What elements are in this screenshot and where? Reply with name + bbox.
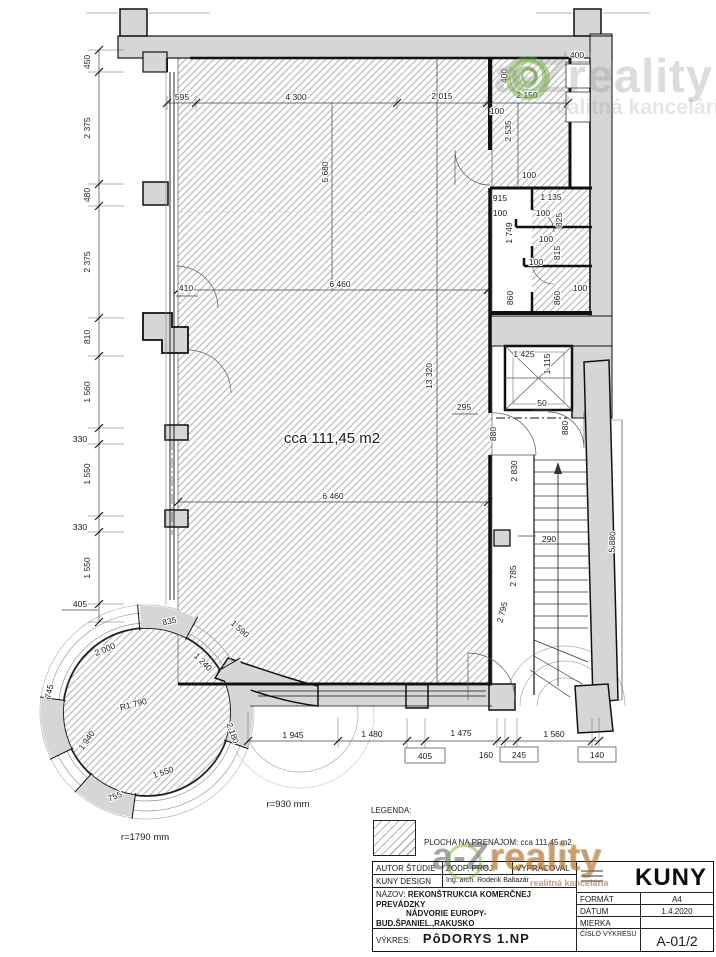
dim-label: 815	[552, 246, 562, 260]
dim-label: 5 680	[320, 161, 330, 183]
dim-label: 410	[179, 283, 193, 293]
dim-label: 330	[73, 522, 87, 532]
dim-label: 860	[552, 291, 562, 305]
vykres-value: PôDORYS 1.NP	[423, 931, 530, 946]
format-label: FORMÁT	[577, 893, 641, 905]
dim-label: 595	[175, 92, 189, 102]
area-label: cca 111,45 m2	[284, 430, 380, 447]
vykres-label: VÝKRES:	[376, 936, 411, 945]
dim-label: 330	[73, 434, 87, 444]
dim-label: 2 785	[508, 565, 518, 587]
dim-label: 1 550	[82, 557, 92, 579]
cislo-label: ČÍSLO VÝKRESU	[577, 929, 641, 951]
dim-label: 745	[43, 683, 56, 699]
dim-label: 450	[82, 55, 92, 69]
dim-label: 2 535	[503, 120, 513, 142]
dim-label: 2 015	[431, 91, 453, 101]
tower-radius-note: r=1790 mm	[121, 832, 169, 843]
dim-label: 915	[493, 193, 507, 203]
dim-label: 4 300	[285, 92, 307, 102]
dim-label: 13 320	[424, 363, 434, 389]
format-value: A4	[641, 893, 713, 905]
dim-label: 100	[522, 170, 536, 180]
dim-label: 140	[590, 750, 604, 760]
floorplan-page: 450 2 375 480 2 375 810 1 560 330 1 550 …	[0, 0, 716, 957]
designer-name: Ing. arch. Roderik Baltazár	[443, 875, 577, 888]
dim-label: 880	[488, 427, 498, 441]
dim-label: 6 460	[329, 279, 351, 289]
dim-label: 2 375	[82, 251, 92, 273]
author-studie-label: AUTOR ŠTÚDIE	[373, 862, 443, 875]
logo-decor-lines	[581, 870, 603, 884]
dim-label: 245	[512, 750, 526, 760]
nazov-block: NÁZOV: REKONŠTRUKCIA KOMERČNEJ PREVÁDZKY…	[373, 888, 577, 929]
dim-label: 100	[493, 208, 507, 218]
dim-label: 2 795	[495, 600, 510, 623]
dim-label: 405	[418, 751, 432, 761]
dim-label: 1 550	[82, 463, 92, 485]
dim-label: 50	[537, 398, 547, 408]
dim-label: 400	[499, 69, 509, 83]
dim-label: 6 460	[322, 491, 344, 501]
dim-label: 100	[529, 257, 543, 267]
dim-label: 860	[505, 291, 515, 305]
title-block: AUTOR ŠTÚDIE ZODP. PROJ. VYPRACOVAL KUNY…	[372, 861, 714, 952]
dim-label: 480	[82, 188, 92, 202]
mierka-value	[641, 917, 713, 929]
datum-label: DÁTUM	[577, 905, 641, 917]
dim-label: 2 150	[516, 90, 538, 100]
floorplan-svg: 450 2 375 480 2 375 810 1 560 330 1 550 …	[0, 0, 716, 957]
dim-label: 880	[560, 421, 570, 435]
dim-label: 100	[573, 283, 587, 293]
studio-name: KUNY DESIGN	[373, 875, 443, 888]
dim-label: 400	[570, 50, 584, 60]
nazov-line2: NÁDVORIE EUROPY- BUD.ŠPANIEL.,RAKUSKO	[376, 909, 486, 928]
dim-label: 1 749	[504, 222, 514, 244]
vypracoval-label: VYPRACOVAL	[513, 862, 577, 875]
dim-label: 1 560	[543, 729, 565, 739]
dim-label: 100	[539, 234, 553, 244]
legend-title: LEGENDA:	[371, 806, 411, 815]
dim-label: 810	[82, 330, 92, 344]
dim-label: 1 945	[282, 730, 304, 740]
dim-label: 100	[536, 208, 550, 218]
dim-label: 100	[490, 106, 504, 116]
dim-label: 825	[554, 213, 564, 227]
dim-label: 295	[457, 402, 471, 412]
nazov-label: NÁZOV:	[376, 890, 405, 899]
dim-label: 1 135	[540, 192, 562, 202]
dim-label: 1 475	[450, 728, 472, 738]
dim-label: 1 425	[513, 349, 535, 359]
cislo-value: A-01/2	[641, 929, 713, 951]
dim-label: 2 375	[82, 117, 92, 139]
dim-label: 160	[479, 750, 493, 760]
dim-label: 1 560	[82, 381, 92, 403]
wall-niches	[566, 64, 590, 122]
zodp-proj-label: ZODP. PROJ.	[443, 862, 513, 875]
vykres-row: VÝKRES: PôDORYS 1.NP	[373, 929, 577, 951]
datum-value: 1.4.2020	[641, 905, 713, 917]
kuny-logo: KUNY	[635, 864, 707, 891]
logo-cell: KUNY	[577, 862, 713, 893]
dim-label: 2 830	[509, 460, 519, 482]
legend-hatch-label: PLOCHA NA PRENÁJOM: cca 111,45 m2	[424, 838, 572, 847]
dim-label: 1 115	[542, 353, 552, 374]
entry-radius-note: r=930 mm	[266, 799, 309, 810]
mierka-label: MIERKA	[577, 917, 641, 929]
dim-label: 405	[73, 599, 87, 609]
legend-hatch-swatch	[373, 820, 416, 856]
dim-label: 5 880	[606, 531, 617, 553]
dim-label: 1 480	[361, 729, 383, 739]
dim-label: 290	[542, 534, 556, 544]
